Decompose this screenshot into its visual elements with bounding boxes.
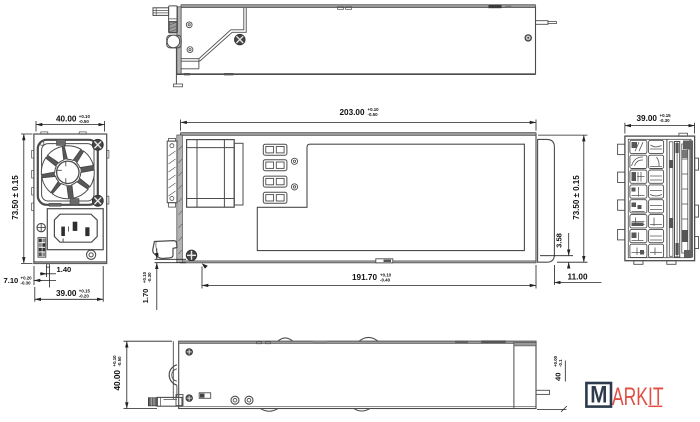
svg-text:1.40: 1.40: [57, 265, 72, 274]
svg-text:-0.50: -0.50: [79, 119, 90, 124]
svg-text:11.00: 11.00: [568, 273, 588, 282]
svg-text:1.70: 1.70: [141, 289, 150, 304]
svg-text:191.70: 191.70: [352, 273, 377, 282]
svg-text:-0.50: -0.50: [368, 112, 379, 117]
svg-text:40.00: 40.00: [56, 115, 77, 124]
svg-text:40: 40: [554, 373, 563, 381]
svg-text:3.58: 3.58: [555, 233, 564, 248]
svg-text:39.00: 39.00: [56, 289, 77, 298]
svg-text:73.50 ± 0.15: 73.50 ± 0.15: [11, 175, 20, 220]
svg-text:7.10: 7.10: [4, 276, 19, 285]
svg-text:73.50 ± 0.15: 73.50 ± 0.15: [572, 175, 581, 220]
svg-text:-0.30: -0.30: [660, 118, 671, 123]
svg-text:203.00: 203.00: [340, 108, 365, 117]
svg-text:M: M: [590, 381, 607, 408]
svg-text:-0.50: -0.50: [117, 356, 122, 367]
svg-text:-0.1: -0.1: [558, 359, 563, 367]
svg-text:-0.30: -0.30: [21, 280, 32, 285]
svg-text:39.00: 39.00: [637, 114, 658, 123]
svg-text:-0.30: -0.30: [147, 272, 152, 283]
svg-text:-0.40: -0.40: [380, 277, 391, 282]
svg-text:-0.20: -0.20: [79, 293, 90, 298]
svg-text:40.00: 40.00: [113, 370, 122, 391]
